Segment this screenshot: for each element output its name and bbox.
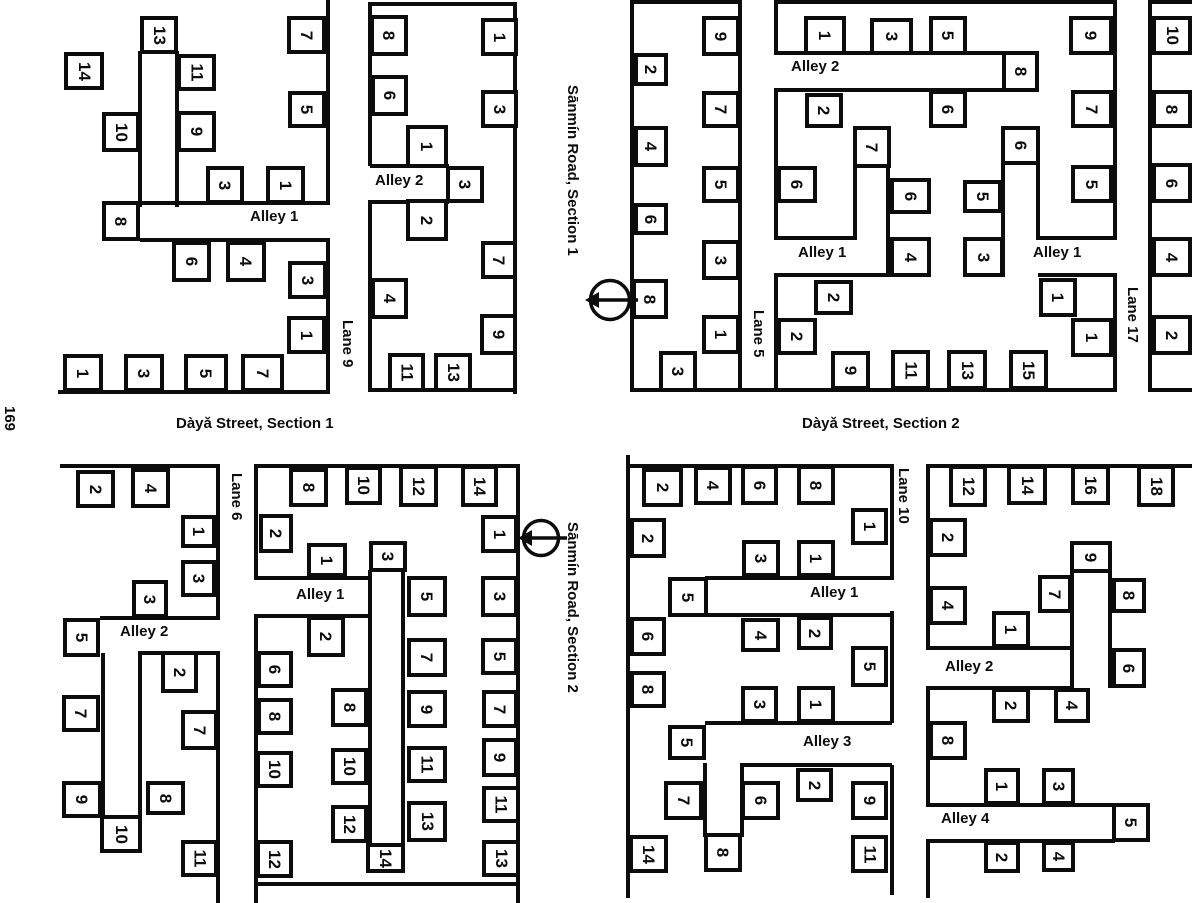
house-number-box: 8 [331,688,368,727]
house-number-box: 8 [630,671,666,708]
house-number: 4 [940,601,957,610]
house-number: 1 [277,180,294,189]
house-number: 2 [816,106,833,115]
street-label: Dàyǎ Street, Section 2 [802,416,960,432]
house-number-box: 10 [331,748,368,785]
house-number-box: 9 [702,16,740,56]
house-number: 8 [808,480,825,489]
house-number: 8 [157,793,174,802]
house-number-box: 13 [434,353,472,392]
house-number-box: 2 [307,616,345,657]
house-number: 9 [492,753,509,762]
house-number-box: 10 [102,112,140,152]
house-number: 13 [418,812,435,831]
street-line [774,90,778,238]
house-number-box: 5 [929,16,967,55]
house-number-box: 2 [929,518,967,557]
house-number-box: 6 [1001,126,1040,165]
house-number-box: 3 [742,540,780,577]
house-number: 1 [75,368,92,377]
house-number: 5 [679,738,696,747]
house-number: 9 [713,31,730,40]
alley-label: Alley 1 [296,587,344,603]
house-number-box: 2 [777,318,817,355]
house-number: 8 [715,848,732,857]
house-number-box: 4 [694,466,732,505]
house-number: 1 [298,330,315,339]
house-number-box: 1 [702,315,740,354]
house-number-box: 14 [461,465,498,507]
house-number-box: 4 [890,237,931,277]
house-number: 2 [806,780,823,789]
alley-label: Alley 4 [941,811,989,827]
house-number: 10 [355,476,372,495]
house-number-box: 4 [131,468,170,508]
house-number: 1 [808,700,825,709]
house-number-box: 18 [1137,465,1175,507]
house-number: 13 [150,26,167,45]
house-number-box: 4 [1054,688,1090,723]
house-number-box: 6 [1112,648,1146,688]
house-number-box: 12 [949,465,987,507]
house-number: 8 [341,703,358,712]
street-line [890,765,894,895]
house-number: 2 [789,332,806,341]
house-number-box: 2 [76,470,115,508]
house-number-box: 4 [741,618,780,652]
house-number-box: 1 [797,686,835,723]
house-number-box: 1 [307,543,347,577]
house-number-box: 7 [481,241,517,279]
house-number: 12 [959,477,976,496]
house-number: 5 [73,633,90,642]
house-number: 13 [444,363,461,382]
house-number: 1 [1050,293,1067,302]
house-number: 14 [471,477,488,496]
north-arrow-icon [514,518,568,558]
street-label: Dàyǎ Street, Section 1 [176,416,334,432]
road-label: Sānmín Road, Section 1 [564,85,580,256]
house-number: 3 [751,700,768,709]
house-number-box: 7 [482,690,518,728]
house-number-box: 4 [1152,237,1192,277]
house-number-box: 11 [482,786,520,823]
house-number: 11 [188,64,205,82]
house-number: 5 [680,592,697,601]
house-number: 4 [752,630,769,639]
house-number: 8 [113,216,130,225]
house-number-box: 1 [266,166,305,204]
house-number-box: 4 [1042,841,1075,872]
house-number-box: 5 [481,638,518,675]
house-number: 6 [752,796,769,805]
house-number: 1 [419,142,436,151]
house-number: 11 [902,361,919,379]
house-number-box: 10 [1152,16,1192,55]
house-number: 3 [190,574,207,583]
house-number-box: 3 [659,351,697,392]
house-number-box: 6 [777,166,817,203]
house-number-box: 4 [371,278,408,319]
house-number: 2 [654,483,671,492]
house-number: 8 [640,685,657,694]
house-number-box: 4 [226,241,266,282]
house-number: 7 [492,704,509,713]
alley-label: Alley 1 [810,585,858,601]
house-number: 5 [491,652,508,661]
house-number: 4 [238,257,255,266]
house-number: 1 [491,529,508,538]
house-number: 15 [1020,361,1037,380]
house-number-box: 8 [289,468,328,507]
house-number-box: 15 [1009,350,1048,390]
house-number-box: 11 [388,353,425,392]
house-number: 7 [298,30,315,39]
house-number: 11 [492,796,509,814]
street-line [254,466,258,578]
street-line [1113,275,1117,390]
house-number: 3 [136,368,153,377]
house-number: 1 [1084,333,1101,342]
house-number: 1 [190,527,207,536]
house-number: 4 [142,483,159,492]
house-number: 3 [491,592,508,601]
alley-label: Alley 1 [250,209,298,225]
house-number-box: 14 [366,843,405,873]
house-number: 2 [268,529,285,538]
house-number: 6 [381,91,398,100]
house-number-box: 2 [259,514,293,553]
house-number: 11 [861,845,878,863]
house-number: 7 [1047,589,1064,598]
house-number: 3 [491,104,508,113]
house-number-box: 6 [630,617,666,656]
alley-label: Alley 2 [375,173,423,189]
house-number: 1 [1003,625,1020,634]
house-number: 6 [640,632,657,641]
house-number: 8 [642,294,659,303]
house-number-box: 5 [63,618,100,657]
house-number-box: 7 [62,695,100,732]
house-number: 7 [73,709,90,718]
house-number-box: 1 [481,515,518,553]
house-number: 5 [940,31,957,40]
street-line [254,882,520,886]
house-number: 6 [1012,141,1029,150]
house-number-box: 8 [797,465,835,505]
house-number-box: 3 [369,541,407,572]
house-number-box: 6 [634,203,668,235]
house-number-box: 9 [62,781,102,818]
house-number: 6 [789,180,806,189]
house-number: 6 [643,214,660,223]
house-number: 12 [266,850,283,869]
alley-label: Alley 2 [791,59,839,75]
house-number-box: 3 [1042,768,1075,805]
house-number-box: 6 [172,241,211,282]
house-number-box: 5 [407,576,447,617]
house-number: 14 [75,62,92,81]
house-number-box: 5 [668,725,706,760]
house-number: 8 [1121,591,1138,600]
house-number-box: 3 [124,354,164,392]
house-number-box: 2 [805,93,843,128]
house-number-box: 2 [161,651,198,693]
house-number: 10 [1163,26,1180,45]
house-number-box: 9 [482,738,518,777]
street-line [368,2,517,6]
house-number: 7 [675,796,692,805]
house-number: 9 [74,795,91,804]
house-number-box: 1 [851,508,888,545]
house-number-box: 3 [288,261,327,299]
house-number-box: 3 [702,240,740,280]
house-number: 7 [254,368,271,377]
house-number-box: 9 [407,690,447,728]
street-line [630,0,742,4]
alley-label: Alley 1 [1033,245,1081,261]
house-number: 3 [753,554,770,563]
house-number-box: 7 [853,126,891,168]
street-line [401,570,405,848]
house-number: 4 [1050,852,1067,861]
house-number-box: 8 [146,781,185,815]
alley-label: Alley 2 [120,624,168,640]
house-number: 6 [183,257,200,266]
house-number: 2 [318,632,335,641]
house-number-box: 9 [831,351,870,390]
house-number-box: 4 [929,586,967,625]
house-number-box: 7 [241,354,284,392]
house-number-box: 13 [407,801,447,842]
house-number: 3 [299,275,316,284]
house-number-box: 5 [963,180,1002,213]
house-number-box: 12 [399,465,438,507]
house-number: 2 [640,533,657,542]
house-number-box: 7 [287,16,326,54]
house-number-box: 1 [984,768,1020,805]
house-number-box: 5 [851,646,888,687]
house-number: 2 [419,215,436,224]
house-number-box: 9 [480,314,517,355]
house-number-box: 5 [1112,803,1150,842]
house-number: 2 [87,484,104,493]
alley-label: Alley 3 [803,734,851,750]
house-number: 13 [958,361,975,380]
house-number: 11 [418,756,435,774]
house-number: 4 [902,252,919,261]
house-number: 5 [299,105,316,114]
street-line [216,464,220,618]
house-number: 2 [171,667,188,676]
house-number-box: 1 [992,611,1030,648]
house-number-box: 16 [1071,465,1110,505]
lane-label: Lane 9 [339,320,355,368]
north-arrow-icon [581,278,639,322]
house-number: 12 [341,815,358,834]
house-number-box: 2 [634,53,668,86]
house-number-box: 7 [1038,575,1072,613]
street-line [368,570,372,848]
house-number-box: 11 [181,840,218,877]
street-line [1148,388,1192,392]
house-number: 8 [1012,67,1029,76]
house-number-box: 3 [132,580,168,618]
house-number: 8 [381,31,398,40]
house-number: 13 [492,849,509,868]
house-number: 7 [491,255,508,264]
house-number: 7 [713,105,730,114]
lane-label: Lane 17 [1124,287,1140,343]
house-number: 4 [1064,701,1081,710]
house-number-box: 6 [371,75,408,116]
house-number: 7 [191,725,208,734]
house-number: 10 [112,825,129,844]
house-number-box: 7 [181,710,218,750]
house-number-box: 9 [1069,16,1113,55]
house-number: 9 [861,796,878,805]
street-line [890,611,894,723]
house-number: 14 [640,845,657,864]
house-number: 18 [1147,477,1164,496]
house-number-box: 6 [741,465,778,505]
house-number: 10 [341,757,358,776]
house-number: 3 [457,180,474,189]
house-number-box: 12 [256,840,293,878]
house-number-box: 14 [1007,465,1047,505]
street-line [1038,273,1117,277]
house-number: 3 [380,552,397,561]
house-number: 3 [975,252,992,261]
house-number: 4 [643,142,660,151]
house-number-box: 10 [345,466,382,505]
house-number-box: 14 [629,835,668,873]
house-number-box: 5 [1071,165,1113,203]
street-line [326,0,330,205]
house-number-box: 1 [1071,318,1113,357]
house-number-box: 3 [446,166,484,203]
street-line [890,464,894,580]
house-number: 14 [377,849,394,868]
house-number-box: 6 [929,90,967,128]
house-number-box: 14 [64,52,104,90]
house-number-box: 7 [1071,90,1113,128]
house-number-box: 8 [370,15,408,56]
house-number-box: 5 [288,91,326,128]
house-number-box: 3 [206,166,244,204]
house-number: 1 [861,522,878,531]
house-number-box: 1 [287,316,326,354]
house-number-box: 3 [481,576,518,617]
house-number-box: 8 [1112,578,1146,613]
lane-label: Lane 5 [750,310,766,358]
house-number: 2 [940,533,957,542]
house-number-box: 1 [804,16,846,55]
house-number: 5 [1084,179,1101,188]
house-number: 2 [994,852,1011,861]
house-number-box: 9 [1070,541,1112,573]
house-number-box: 9 [851,781,888,820]
street-line [926,803,1115,807]
house-number: 3 [883,32,900,41]
house-number-box: 4 [634,126,668,167]
house-number: 12 [410,477,427,496]
house-number-box: 3 [870,18,913,55]
house-number: 10 [112,123,129,142]
house-number-box: 12 [331,805,368,843]
house-number-box: 3 [741,686,778,723]
house-number-box: 2 [814,280,853,315]
street-line [774,88,1005,92]
house-number: 11 [191,850,208,868]
street-line [774,0,1117,4]
street-map-figure: 1314111093175864311357816313274911132468… [0,0,1192,903]
house-number: 3 [217,180,234,189]
house-number: 4 [1164,252,1181,261]
house-number-box: 1 [406,125,448,168]
house-number: 8 [300,483,317,492]
house-number-box: 9 [177,111,216,152]
house-number: 3 [142,594,159,603]
house-number: 5 [419,592,436,601]
street-line [740,763,892,767]
house-number: 6 [1121,663,1138,672]
house-number-box: 11 [177,54,216,91]
house-number-box: 2 [797,616,833,650]
house-number: 4 [705,481,722,490]
house-number-box: 7 [702,91,740,128]
house-number: 9 [188,127,205,136]
house-number: 5 [198,368,215,377]
house-number: 3 [713,255,730,264]
house-number: 5 [861,662,878,671]
house-number-box: 11 [891,350,930,390]
house-number: 14 [1018,476,1035,495]
house-number-box: 10 [256,751,293,788]
house-number-box: 7 [664,781,703,820]
house-number: 6 [940,104,957,113]
house-number-box: 10 [100,815,142,853]
house-number-box: 1 [797,540,835,577]
house-number: 4 [381,294,398,303]
house-number: 1 [713,330,730,339]
house-number: 7 [1084,104,1101,113]
house-number: 9 [842,366,859,375]
house-number-box: 8 [257,698,293,735]
house-number-box: 8 [929,721,967,760]
house-number-box: 2 [1152,315,1192,355]
house-number: 2 [1003,701,1020,710]
house-number-box: 6 [741,781,780,820]
house-number: 16 [1082,476,1099,495]
house-number-box: 3 [963,237,1004,277]
house-number-box: 5 [702,166,740,203]
house-number: 9 [1083,552,1100,561]
street-line [138,651,142,819]
house-number: 5 [974,192,991,201]
street-line [1038,236,1117,240]
house-number-box: 2 [984,841,1020,873]
house-number: 2 [807,628,824,637]
street-line [1113,0,1117,238]
house-number-box: 13 [140,16,178,54]
house-number-box: 13 [947,350,987,390]
house-number-box: 2 [642,468,683,507]
house-number-box: 1 [1039,278,1077,317]
house-number: 9 [490,330,507,339]
house-number: 9 [1083,31,1100,40]
house-number: 7 [864,142,881,151]
